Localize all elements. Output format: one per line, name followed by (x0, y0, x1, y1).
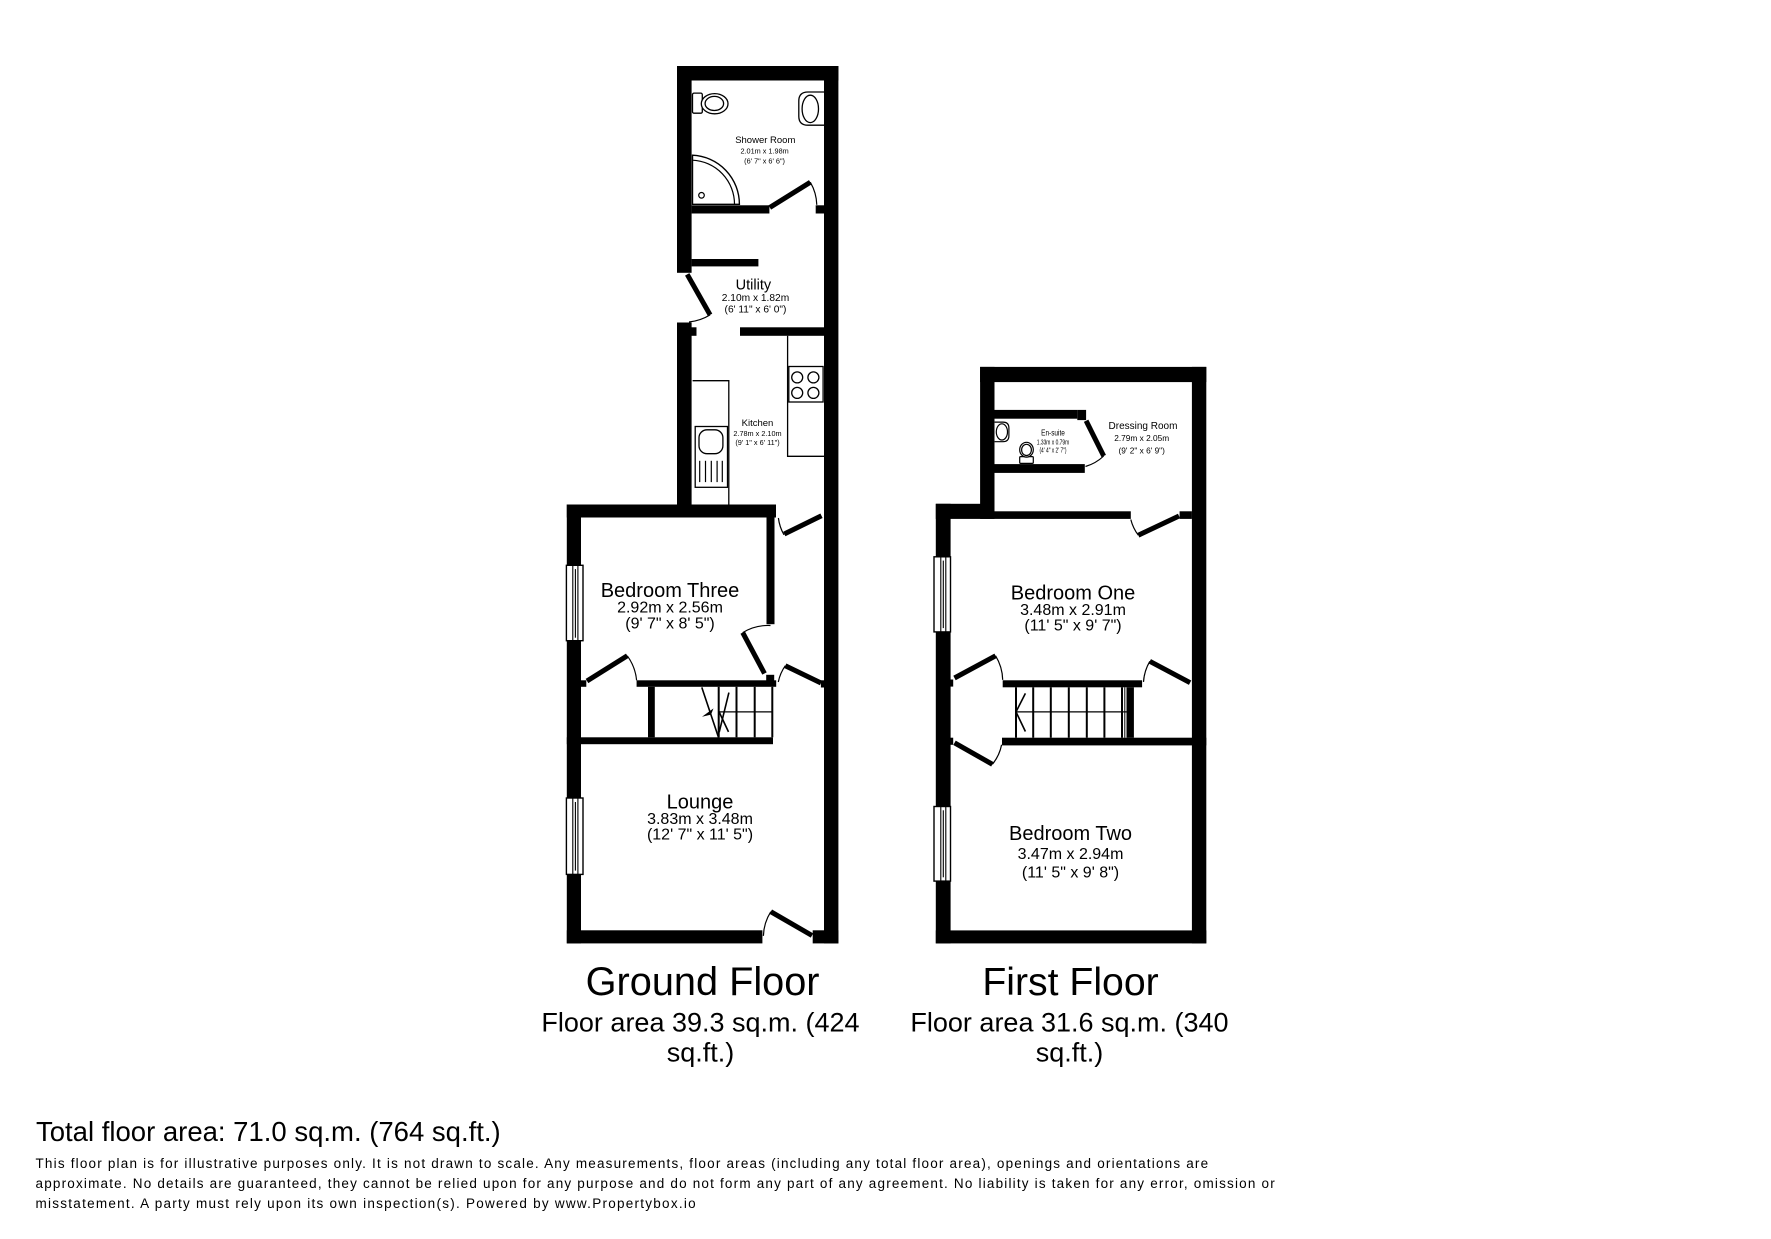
svg-text:Bedroom Three: Bedroom Three (601, 580, 740, 602)
svg-text:3.83m x 3.48m: 3.83m x 3.48m (647, 811, 753, 828)
svg-text:Kitchen: Kitchen (742, 418, 774, 429)
svg-text:2.01m x 1.98m: 2.01m x 1.98m (740, 147, 788, 156)
svg-text:Bedroom One: Bedroom One (1011, 582, 1136, 604)
svg-text:3.48m x 2.91m: 3.48m x 2.91m (1020, 602, 1126, 619)
svg-text:sq.ft.): sq.ft.) (667, 1038, 735, 1068)
svg-text:2.10m x 1.82m: 2.10m x 1.82m (722, 293, 789, 304)
svg-text:(4' 4" x 2' 7"): (4' 4" x 2' 7") (1039, 447, 1066, 454)
svg-text:2.78m x 2.10m: 2.78m x 2.10m (733, 429, 781, 438)
svg-text:misstatement. A party must rel: misstatement. A party must rely upon its… (36, 1196, 697, 1211)
svg-text:Lounge: Lounge (667, 791, 734, 813)
svg-text:Shower Room: Shower Room (735, 135, 795, 146)
svg-text:(11' 5" x 9' 7"): (11' 5" x 9' 7") (1024, 618, 1121, 635)
svg-text:sq.ft.): sq.ft.) (1036, 1038, 1104, 1068)
svg-text:(6' 7" x 6' 6"): (6' 7" x 6' 6") (744, 157, 785, 166)
svg-text:First Floor: First Floor (982, 961, 1158, 1004)
svg-text:1.33m x 0.79m: 1.33m x 0.79m (1037, 439, 1070, 446)
svg-text:Bedroom Two: Bedroom Two (1009, 823, 1132, 845)
svg-text:(6' 11" x 6' 0"): (6' 11" x 6' 0") (725, 305, 787, 316)
svg-text:(9' 7" x 8' 5"): (9' 7" x 8' 5") (625, 615, 715, 632)
svg-text:3.47m x 2.94m: 3.47m x 2.94m (1018, 846, 1124, 863)
svg-text:(12' 7" x 11' 5"): (12' 7" x 11' 5") (647, 827, 753, 844)
svg-text:Floor area 39.3 sq.m. (424: Floor area 39.3 sq.m. (424 (541, 1008, 859, 1038)
svg-text:Ground Floor: Ground Floor (586, 960, 820, 1004)
svg-text:(9' 1" x 6' 11"): (9' 1" x 6' 11") (735, 438, 779, 447)
svg-text:2.79m x 2.05m: 2.79m x 2.05m (1114, 433, 1169, 443)
svg-text:Floor area 31.6 sq.m. (340: Floor area 31.6 sq.m. (340 (910, 1008, 1228, 1038)
svg-text:approximate. No details are gu: approximate. No details are guaranteed, … (36, 1176, 1276, 1191)
svg-text:En-suite: En-suite (1041, 429, 1065, 438)
svg-text:(11' 5" x 9' 8"): (11' 5" x 9' 8") (1022, 864, 1119, 881)
svg-text:This floor plan is for illustr: This floor plan is for illustrative purp… (36, 1156, 1210, 1171)
svg-text:(9' 2" x 6' 9"): (9' 2" x 6' 9") (1118, 445, 1165, 455)
svg-text:Total floor area: 71.0 sq.m. (: Total floor area: 71.0 sq.m. (764 sq.ft.… (36, 1116, 501, 1147)
svg-text:Dressing Room: Dressing Room (1109, 421, 1178, 432)
svg-text:2.92m x 2.56m: 2.92m x 2.56m (617, 600, 723, 617)
svg-text:Utility: Utility (736, 278, 772, 294)
